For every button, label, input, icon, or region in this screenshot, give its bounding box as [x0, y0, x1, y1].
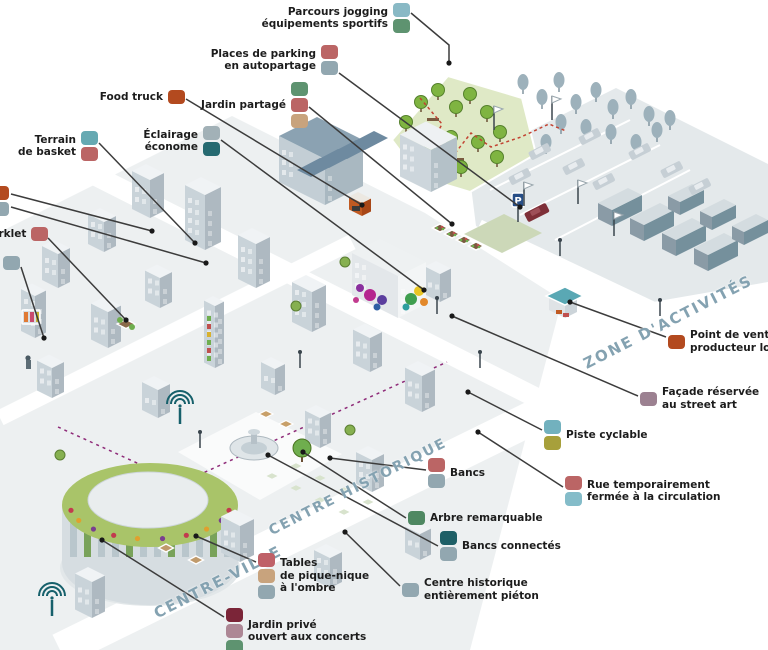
legend-color-swatch	[0, 202, 9, 216]
legend-label: Piste cyclable	[566, 429, 648, 442]
legend-label-line: Jardin privé	[248, 619, 366, 632]
legend-color-swatch	[544, 436, 561, 450]
legend-label-line: entièrement piéton	[424, 590, 539, 603]
legend-color-swatch	[440, 547, 457, 561]
legend-item-bancs-connectes: Bancs connectés	[440, 531, 561, 561]
legend-label-line: Façade réservée	[662, 386, 759, 399]
legend-color-swatch	[203, 142, 220, 156]
legend-item-food-truck: Food truck	[100, 90, 185, 104]
legend-color-swatch	[321, 61, 338, 75]
legend-swatch-column	[565, 476, 582, 506]
legend-swatch-column	[226, 608, 243, 650]
legend-color-swatch	[226, 640, 243, 650]
legend-color-swatch	[291, 114, 308, 128]
legend-color-swatch	[0, 186, 9, 200]
legend-label-line: Parklet	[0, 228, 26, 241]
legend-item-facade-reservee-au-street-art: Façade réservéeau street art	[640, 386, 759, 411]
legend-item-places-de-parking-en-autopartage: Places de parkingen autopartage	[211, 45, 338, 75]
legend-color-swatch	[640, 392, 657, 406]
legend-color-swatch	[393, 3, 410, 17]
legend-label-line: de basket	[18, 146, 76, 159]
legend-swatch-column	[402, 583, 419, 597]
legend-swatch-column	[640, 392, 657, 406]
legend-item-piste-cyclable: Piste cyclable	[544, 420, 648, 450]
legend-item-arbre-remarquable: Arbre remarquable	[408, 511, 543, 525]
legend-label-line: producteur local	[690, 342, 768, 355]
legend-label-line: Éclairage	[143, 129, 198, 142]
legend-label: Bancs	[450, 467, 485, 480]
legend-color-swatch	[393, 19, 410, 33]
legend-label-line: de pique-nique	[280, 570, 369, 583]
legend-label: Rue temporairementfermée à la circulatio…	[587, 479, 720, 504]
legend-label-line: Tables	[280, 557, 369, 570]
legend-label: Parcours joggingéquipements sportifs	[262, 6, 388, 31]
legend-color-swatch	[226, 624, 243, 638]
legend-swatch-column	[428, 458, 445, 488]
legend-label-line: équipements sportifs	[262, 18, 388, 31]
legend-label: Terrainde basket	[18, 134, 76, 159]
legend-item-point-de-vente-producteur-local: Point de venteproducteur local	[668, 329, 768, 354]
legend-label-line: Jardin partagé	[201, 99, 286, 112]
legend-label: Places de parkingen autopartage	[211, 48, 316, 73]
legend-label-line: Parcours jogging	[262, 6, 388, 19]
legend-swatch-column	[168, 90, 185, 104]
legend-label-line: Places de parking	[211, 48, 316, 61]
legend-color-swatch	[81, 147, 98, 161]
legend-swatch-column	[408, 511, 425, 525]
legend-swatch-column	[203, 126, 220, 156]
legend-color-swatch	[408, 511, 425, 525]
legend-label-line: Point de vente	[690, 329, 768, 342]
legend-swatch-column	[668, 335, 685, 349]
legend-color-swatch	[291, 98, 308, 112]
legend-label-line: économe	[143, 141, 198, 154]
legend-color-swatch	[226, 608, 243, 622]
legend-label: Point de venteproducteur local	[690, 329, 768, 354]
legend-item-parklet: Parklet	[0, 227, 48, 241]
legend-color-swatch	[668, 335, 685, 349]
legend-label-line: Rue temporairement	[587, 479, 720, 492]
legend-item-tables-de-pique-nique-a-l-ombre: Tablesde pique-niqueà l'ombre	[258, 553, 369, 599]
legend-label-line: Piste cyclable	[566, 429, 648, 442]
legend-item-centre-historique-entierement-pieton: Centre historiqueentièrement piéton	[402, 577, 539, 602]
legend-label: Jardin partagé	[201, 99, 286, 112]
legend-swatch-column	[291, 82, 308, 128]
legend-label-line: Terrain	[18, 134, 76, 147]
legend-color-swatch	[168, 90, 185, 104]
legend-label: Jardin privéouvert aux concerts	[248, 619, 366, 644]
legend-color-swatch	[291, 82, 308, 96]
legend-label-line: Arbre remarquable	[430, 512, 543, 525]
legend-color-swatch	[321, 45, 338, 59]
legend-item-terrain-de-basket: Terrainde basket	[18, 131, 98, 161]
legend-label: Tablesde pique-niqueà l'ombre	[280, 557, 369, 595]
legend-label: Food truck	[100, 91, 163, 104]
legend-label: Éclairageéconome	[143, 129, 198, 154]
legend-swatch-column	[31, 227, 48, 241]
legend-label-line: Bancs connectés	[462, 540, 561, 553]
legend-color-swatch	[258, 569, 275, 583]
legend-label-line: Centre historique	[424, 577, 539, 590]
legend-swatch-column	[440, 531, 457, 561]
legend-swatch-column	[544, 420, 561, 450]
legend-item-jardin-partage: Jardin partagé	[201, 82, 308, 128]
legend-color-swatch	[565, 492, 582, 506]
legend-color-swatch	[428, 458, 445, 472]
legend-label-line: Bancs	[450, 467, 485, 480]
legend-swatch-column	[258, 553, 275, 599]
legend-item-parcours-jogging-equipements-sportifs: Parcours joggingéquipements sportifs	[262, 3, 410, 33]
legend-swatch-column	[321, 45, 338, 75]
legend-label-line: ouvert aux concerts	[248, 631, 366, 644]
legend-label-line: en autopartage	[211, 60, 316, 73]
legend-swatch-column	[3, 256, 20, 270]
legend-color-swatch	[31, 227, 48, 241]
legend-swatch-column	[393, 3, 410, 33]
legend-swatch-column	[0, 186, 9, 216]
legend-color-swatch	[203, 126, 220, 140]
legend-color-swatch	[544, 420, 561, 434]
legend-item-eclairage-econome: Éclairageéconome	[143, 126, 220, 156]
legend-item-jardin-prive-ouvert-aux-concerts: Jardin privéouvert aux concerts	[226, 608, 366, 650]
legend-color-swatch	[3, 256, 20, 270]
legend-label: Façade réservéeau street art	[662, 386, 759, 411]
legend-swatch-column	[81, 131, 98, 161]
legend-label-line: Food truck	[100, 91, 163, 104]
legend-color-swatch	[81, 131, 98, 145]
legend-item-legend-cut-left-1	[0, 186, 9, 216]
legend-item-legend-cut-left-2	[3, 256, 20, 270]
infographic-canvas: P ZONE D'ACTIVITÉS CENTRE HISTORIQUE CEN…	[0, 0, 768, 650]
legend-color-swatch	[258, 585, 275, 599]
legend-color-swatch	[258, 553, 275, 567]
legend-label: Parklet	[0, 228, 26, 241]
legend-color-swatch	[440, 531, 457, 545]
legend-color-swatch	[565, 476, 582, 490]
legend-item-bancs: Bancs	[428, 458, 485, 488]
legend-label: Centre historiqueentièrement piéton	[424, 577, 539, 602]
legend-label: Bancs connectés	[462, 540, 561, 553]
legend-item-rue-temporairement-fermee-a-la-circulation: Rue temporairementfermée à la circulatio…	[565, 476, 720, 506]
legend-color-swatch	[402, 583, 419, 597]
legend-label: Arbre remarquable	[430, 512, 543, 525]
legend-label-line: au street art	[662, 399, 759, 412]
legend-color-swatch	[428, 474, 445, 488]
legend-label-line: à l'ombre	[280, 582, 369, 595]
legend-label-line: fermée à la circulation	[587, 491, 720, 504]
